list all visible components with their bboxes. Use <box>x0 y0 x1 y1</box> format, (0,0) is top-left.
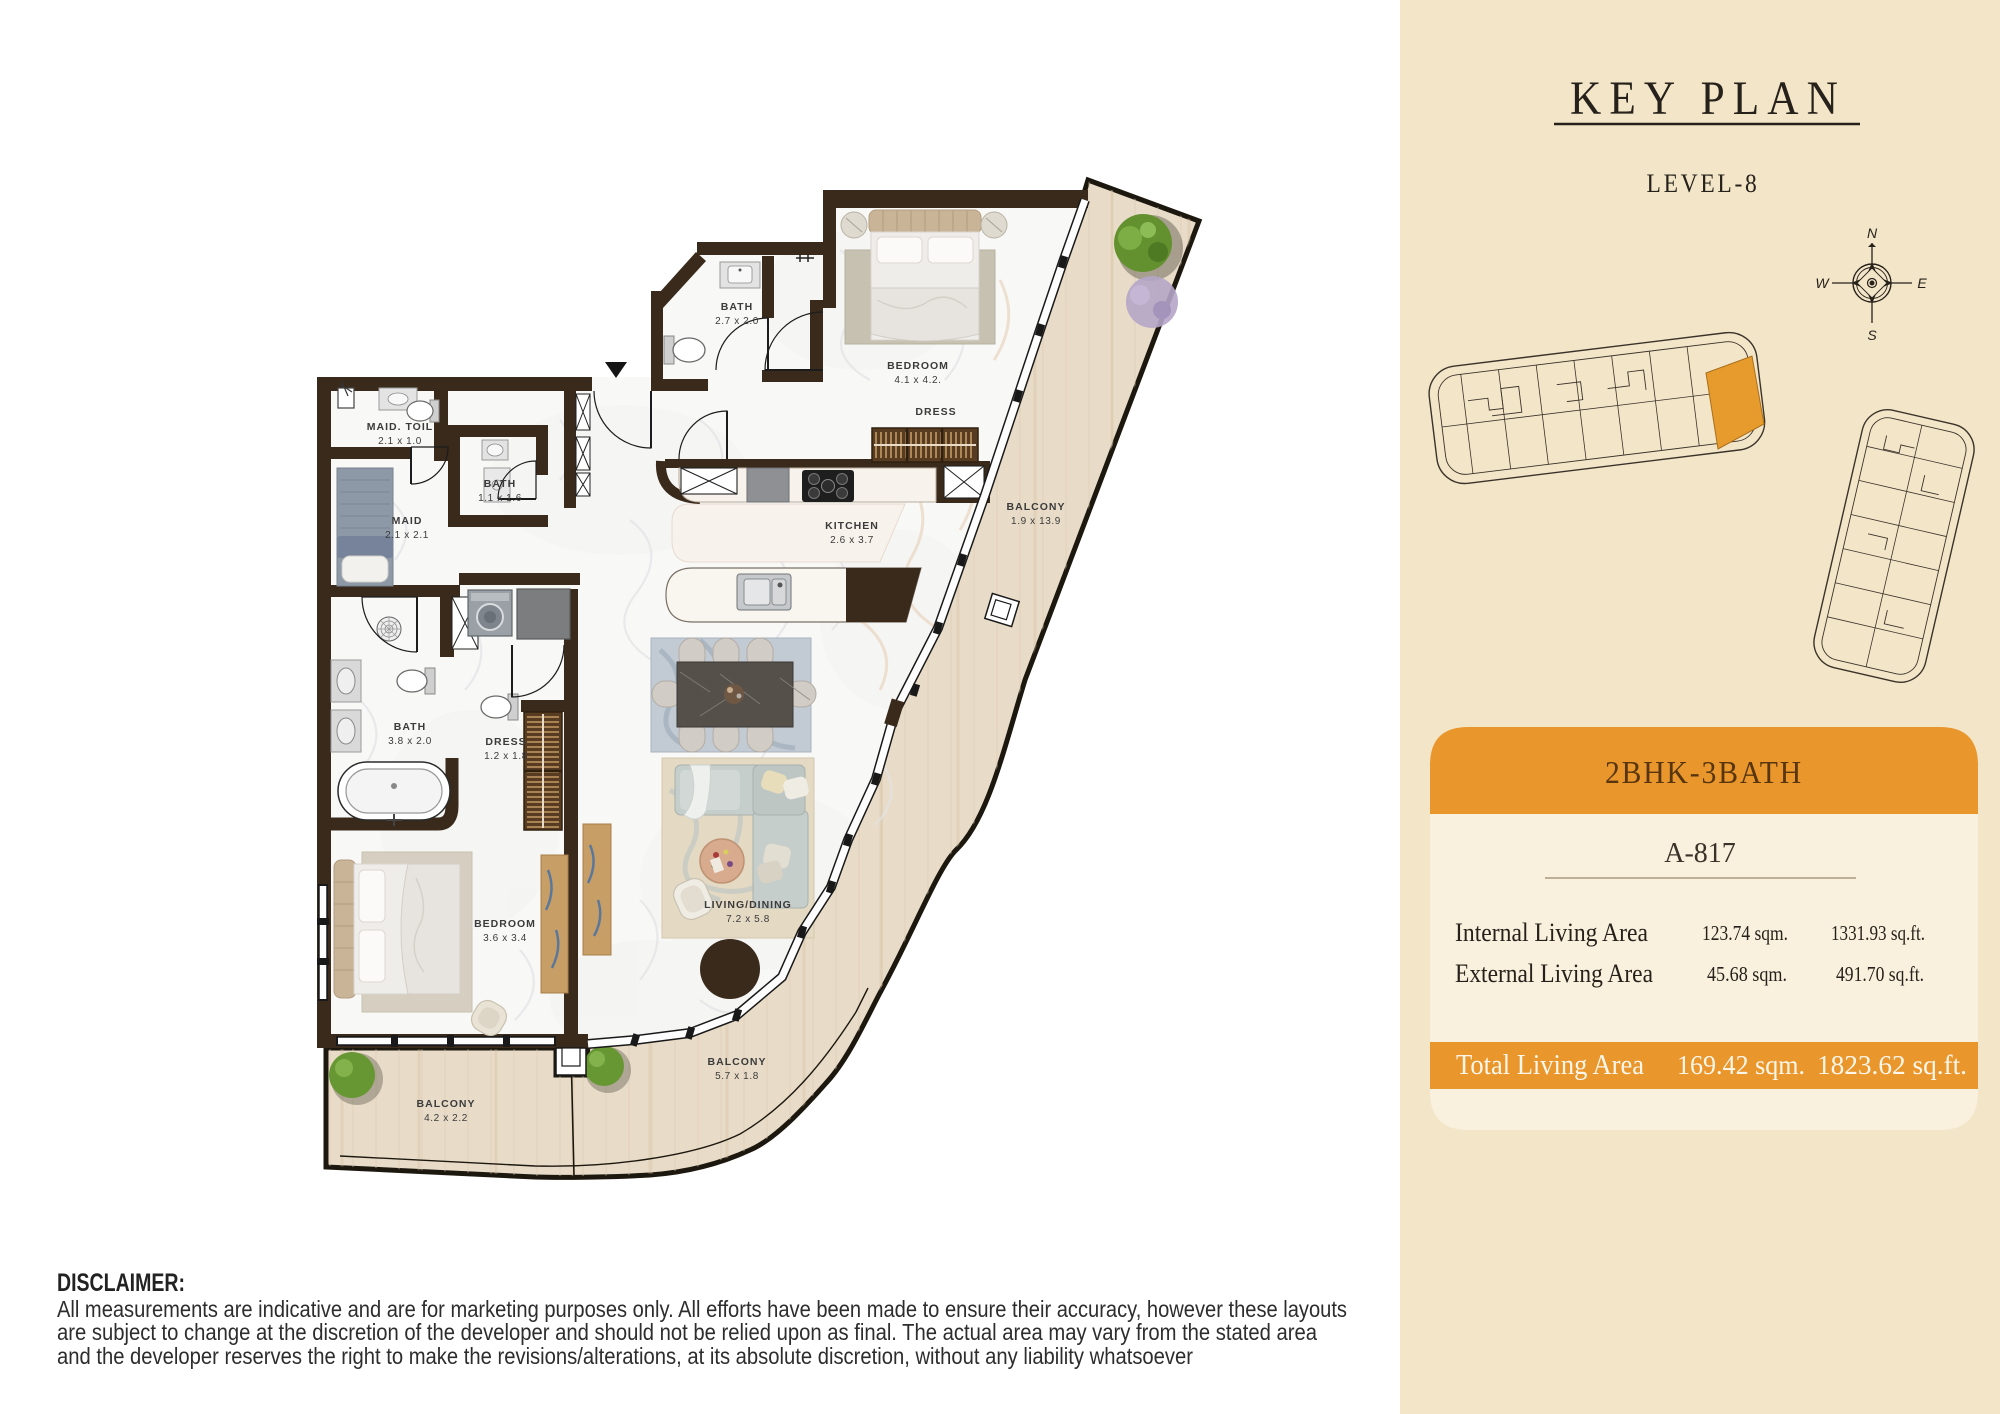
svg-text:DISCLAIMER:: DISCLAIMER: <box>57 1269 185 1297</box>
svg-text:3.8 x 2.0: 3.8 x 2.0 <box>388 736 432 747</box>
svg-text:BATH: BATH <box>394 721 426 733</box>
svg-text:MAID: MAID <box>392 515 423 527</box>
svg-text:are subject to change at the d: are subject to change at the discretion … <box>57 1319 1318 1345</box>
svg-text:2.6 x 3.7: 2.6 x 3.7 <box>830 535 874 546</box>
svg-text:External Living Area: External Living Area <box>1455 959 1653 988</box>
svg-text:123.74 sqm.: 123.74 sqm. <box>1702 921 1788 945</box>
svg-text:Internal Living Area: Internal Living Area <box>1455 918 1648 947</box>
svg-text:A-817: A-817 <box>1664 838 1736 869</box>
svg-text:MAID. TOIL: MAID. TOIL <box>367 421 433 433</box>
svg-text:491.70 sq.ft.: 491.70 sq.ft. <box>1836 962 1924 986</box>
svg-text:BALCONY: BALCONY <box>1007 501 1066 513</box>
svg-text:DRESS: DRESS <box>485 736 526 748</box>
svg-text:LEVEL-8: LEVEL-8 <box>1647 169 1760 198</box>
svg-text:S: S <box>1867 327 1877 343</box>
svg-text:1823.62 sq.ft.: 1823.62 sq.ft. <box>1817 1050 1967 1080</box>
svg-text:BALCONY: BALCONY <box>708 1056 767 1068</box>
svg-text:E: E <box>1917 275 1927 291</box>
svg-text:3.6 x 3.4: 3.6 x 3.4 <box>483 933 527 944</box>
svg-text:BALCONY: BALCONY <box>417 1098 476 1110</box>
svg-text:BATH: BATH <box>721 301 753 313</box>
svg-text:1331.93 sq.ft.: 1331.93 sq.ft. <box>1831 921 1925 945</box>
svg-text:BEDROOM: BEDROOM <box>474 918 536 930</box>
svg-text:W: W <box>1815 275 1830 291</box>
svg-text:2.7 x 2.0: 2.7 x 2.0 <box>715 316 759 327</box>
svg-text:BATH: BATH <box>484 478 516 490</box>
svg-text:and the developer reserves the: and the developer reserves the right to … <box>57 1343 1193 1369</box>
svg-text:BEDROOM: BEDROOM <box>887 360 949 372</box>
svg-text:7.2 x 5.8: 7.2 x 5.8 <box>726 914 770 925</box>
svg-text:45.68 sqm.: 45.68 sqm. <box>1707 962 1787 986</box>
svg-text:Total Living Area: Total Living Area <box>1456 1050 1645 1081</box>
svg-text:KITCHEN: KITCHEN <box>825 520 879 532</box>
svg-text:1.9 x 13.9: 1.9 x 13.9 <box>1011 516 1061 527</box>
svg-text:4.2 x 2.2: 4.2 x 2.2 <box>424 1113 468 1124</box>
svg-text:169.42 sqm.: 169.42 sqm. <box>1677 1050 1805 1080</box>
svg-text:LIVING/DINING: LIVING/DINING <box>704 899 792 911</box>
svg-text:2BHK-3BATH: 2BHK-3BATH <box>1605 754 1803 790</box>
svg-text:1.1 x 1.6: 1.1 x 1.6 <box>478 493 522 504</box>
svg-text:DRESS: DRESS <box>915 406 956 418</box>
svg-text:4.1 x 4.2.: 4.1 x 4.2. <box>894 375 941 386</box>
svg-text:1.2 x 1.8: 1.2 x 1.8 <box>484 751 528 762</box>
svg-text:2.1 x 2.1: 2.1 x 2.1 <box>385 530 429 541</box>
svg-text:2.1 x 1.0: 2.1 x 1.0 <box>378 436 422 447</box>
svg-text:KEY PLAN: KEY PLAN <box>1570 72 1846 125</box>
svg-text:5.7 x 1.8: 5.7 x 1.8 <box>715 1071 759 1082</box>
svg-text:N: N <box>1867 225 1878 241</box>
